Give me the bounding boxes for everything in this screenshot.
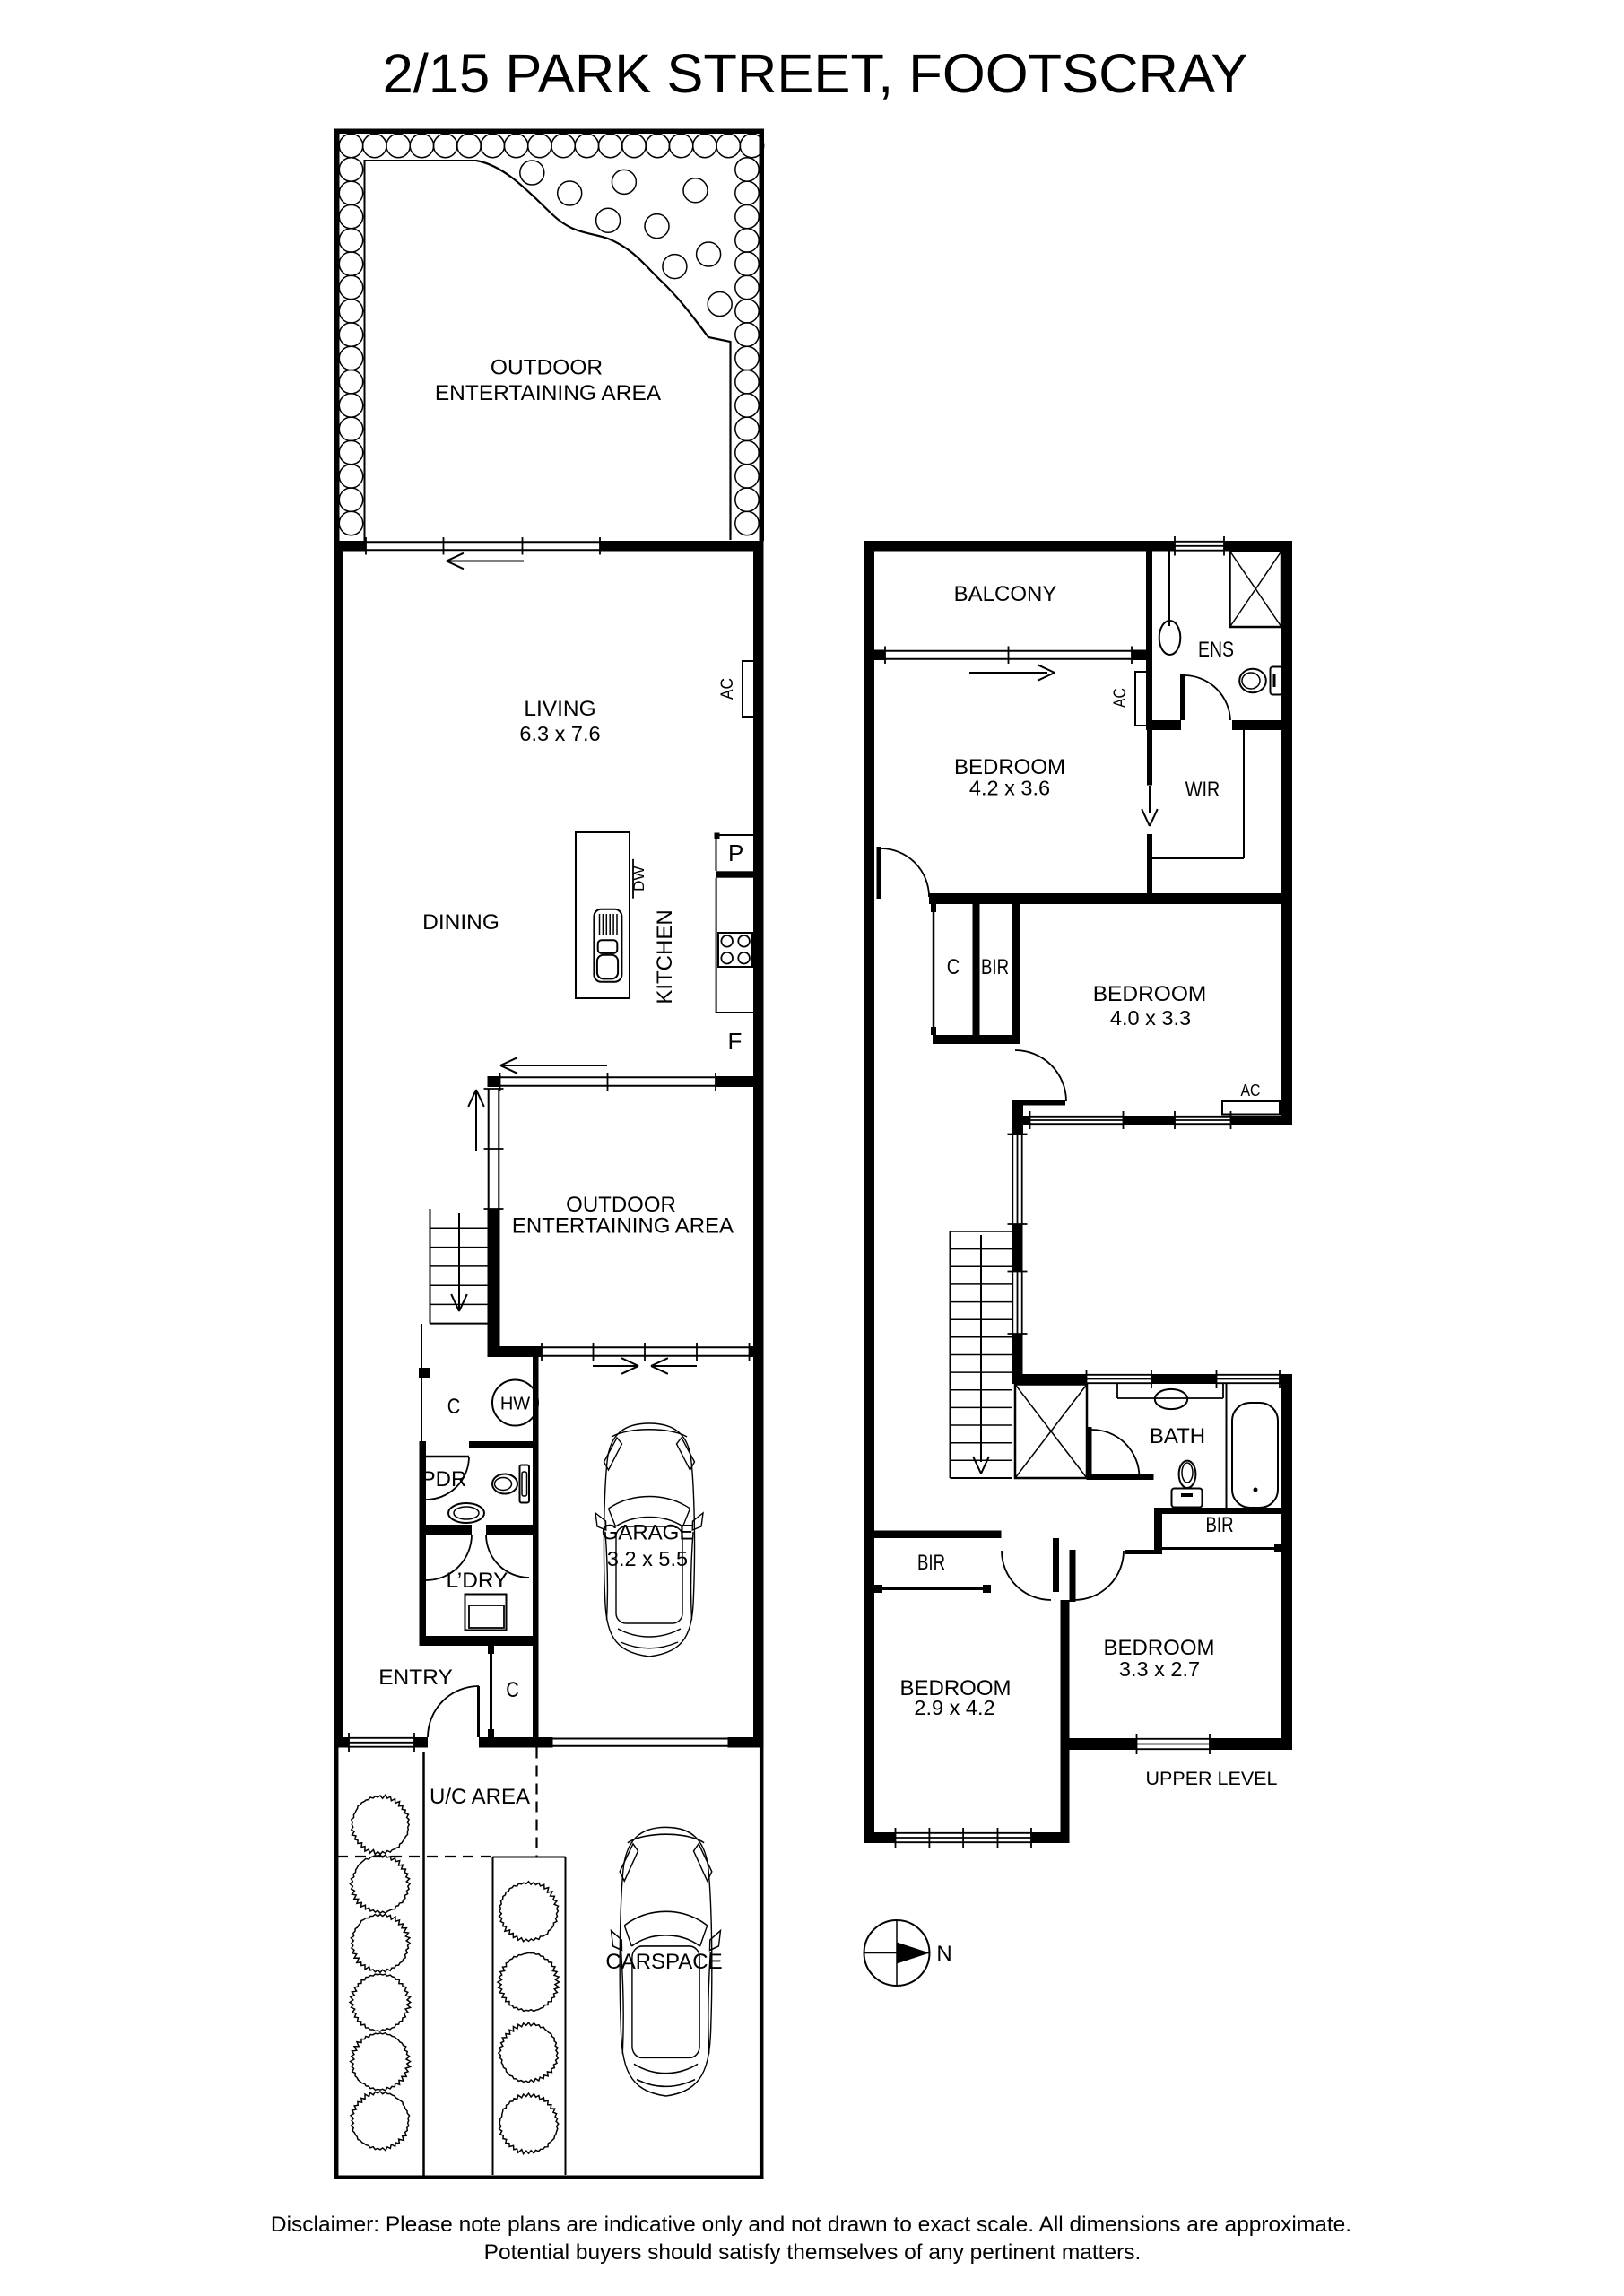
svg-text:2.9 x 4.2: 2.9 x 4.2 (914, 1696, 994, 1719)
svg-text:BALCONY: BALCONY (954, 582, 1057, 606)
svg-text:4.2 x 3.6: 4.2 x 3.6 (969, 777, 1050, 800)
svg-text:C: C (947, 955, 960, 979)
svg-text:Potential buyers should satisf: Potential buyers should satisfy themselv… (484, 2240, 1142, 2265)
svg-text:BIR: BIR (1206, 1513, 1234, 1537)
svg-text:ENTRY: ENTRY (378, 1665, 453, 1690)
svg-text:C: C (447, 1395, 461, 1419)
svg-text:Disclaimer: Please note plans: Disclaimer: Please note plans are indica… (271, 2213, 1351, 2237)
svg-text:4.0 x 3.3: 4.0 x 3.3 (1110, 1006, 1191, 1030)
svg-text:AC: AC (1241, 1081, 1261, 1100)
svg-text:ENTERTAINING AREA: ENTERTAINING AREA (435, 381, 662, 405)
svg-text:KITCHEN: KITCHEN (653, 909, 677, 1004)
svg-text:PDR: PDR (421, 1467, 467, 1492)
svg-text:6.3 x 7.6: 6.3 x 7.6 (519, 722, 600, 745)
svg-text:BATH: BATH (1150, 1424, 1205, 1448)
svg-text:AC: AC (1111, 688, 1130, 708)
svg-text:2/15 PARK STREET, FOOTSCRAY: 2/15 PARK STREET, FOOTSCRAY (383, 43, 1248, 105)
svg-text:BIR: BIR (981, 955, 1009, 979)
svg-text:C: C (506, 1678, 519, 1702)
svg-text:LIVING: LIVING (524, 697, 595, 721)
svg-text:L’DRY: L’DRY (446, 1569, 508, 1593)
svg-text:UPPER LEVEL: UPPER LEVEL (1146, 1768, 1278, 1789)
svg-text:WIR: WIR (1185, 778, 1220, 802)
svg-text:ENS: ENS (1198, 638, 1234, 662)
svg-text:HW: HW (500, 1395, 530, 1414)
svg-text:BEDROOM: BEDROOM (1093, 982, 1207, 1006)
svg-text:U/C AREA: U/C AREA (430, 1785, 530, 1809)
svg-text:BIR: BIR (917, 1551, 945, 1575)
svg-text:N: N (936, 1942, 951, 1966)
svg-text:GARAGE: GARAGE (602, 1521, 694, 1545)
svg-text:3.3 x 2.7: 3.3 x 2.7 (1119, 1657, 1200, 1681)
svg-text:CARSPACE: CARSPACE (605, 1950, 722, 1974)
svg-text:OUTDOOR: OUTDOOR (491, 356, 603, 380)
svg-text:ENTERTAINING AREA: ENTERTAINING AREA (512, 1214, 734, 1239)
svg-text:F: F (728, 1028, 743, 1055)
svg-text:DINING: DINING (422, 910, 499, 935)
svg-text:3.2 x 5.5: 3.2 x 5.5 (607, 1547, 688, 1570)
svg-text:BEDROOM: BEDROOM (1103, 1636, 1214, 1660)
svg-text:AC: AC (718, 678, 737, 700)
svg-text:P: P (728, 839, 743, 866)
